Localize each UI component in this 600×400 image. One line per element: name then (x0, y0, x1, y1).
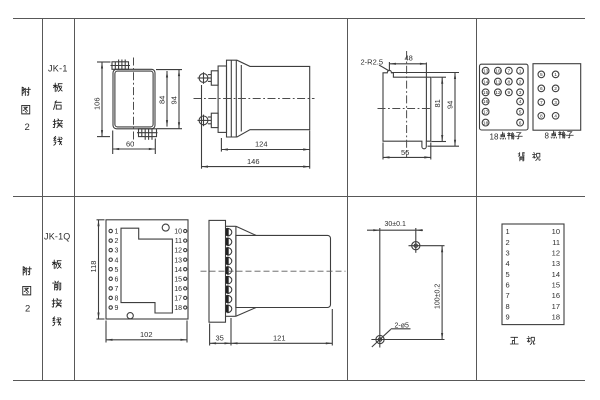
svg-text:2: 2 (25, 304, 30, 315)
svg-text:1: 1 (115, 229, 119, 236)
svg-text:3: 3 (115, 248, 119, 255)
svg-text:35: 35 (216, 334, 224, 343)
svg-text:15: 15 (174, 276, 182, 283)
svg-text:18: 18 (174, 305, 182, 312)
svg-text:2: 2 (519, 79, 522, 85)
svg-text:102: 102 (140, 330, 153, 339)
svg-text:4: 4 (554, 114, 557, 120)
svg-text:2: 2 (554, 86, 557, 92)
svg-text:1: 1 (554, 72, 557, 78)
svg-text:5: 5 (540, 72, 543, 78)
svg-text:11: 11 (175, 238, 182, 245)
svg-text:8: 8 (115, 296, 119, 303)
svg-text:9: 9 (115, 305, 119, 312)
svg-text:48: 48 (405, 54, 413, 63)
svg-text:146: 146 (247, 157, 260, 166)
svg-text:8: 8 (545, 132, 550, 141)
svg-text:12: 12 (174, 248, 182, 255)
svg-text:5: 5 (519, 109, 522, 115)
svg-text:118: 118 (89, 261, 98, 273)
svg-text:11: 11 (495, 79, 500, 85)
svg-text:10: 10 (495, 68, 501, 74)
svg-text:7: 7 (506, 291, 510, 300)
svg-text:17: 17 (174, 296, 182, 303)
svg-text:3: 3 (554, 100, 557, 106)
svg-text:8: 8 (506, 302, 510, 311)
svg-text:17: 17 (552, 302, 560, 311)
svg-text:10: 10 (552, 227, 560, 236)
svg-text:8: 8 (540, 114, 543, 120)
svg-text:2: 2 (506, 238, 510, 247)
svg-text:11: 11 (552, 238, 560, 247)
svg-text:6: 6 (540, 86, 543, 92)
svg-text:18: 18 (490, 133, 499, 142)
svg-text:30±0.1: 30±0.1 (385, 221, 406, 228)
svg-text:10: 10 (174, 229, 182, 236)
svg-text:7: 7 (115, 286, 119, 293)
svg-text:84: 84 (158, 96, 167, 104)
svg-text:3: 3 (519, 90, 522, 96)
svg-text:13: 13 (483, 68, 489, 74)
svg-text:121: 121 (273, 334, 286, 343)
svg-text:7: 7 (507, 68, 510, 74)
svg-text:16: 16 (552, 291, 560, 300)
svg-text:16: 16 (483, 99, 489, 105)
svg-text:14: 14 (174, 267, 182, 274)
svg-text:4: 4 (519, 99, 522, 105)
svg-text:2: 2 (115, 238, 119, 245)
svg-text:3: 3 (506, 249, 510, 258)
svg-text:13: 13 (174, 257, 182, 264)
svg-text:81: 81 (433, 99, 442, 107)
svg-text:18: 18 (483, 120, 489, 126)
svg-text:14: 14 (483, 79, 489, 85)
svg-text:2: 2 (25, 122, 30, 133)
svg-text:4: 4 (506, 259, 510, 268)
svg-text:1: 1 (506, 227, 510, 236)
svg-text:94: 94 (170, 96, 179, 104)
svg-text:6: 6 (115, 276, 119, 283)
svg-text:94: 94 (446, 101, 455, 109)
svg-text:13: 13 (552, 259, 560, 268)
svg-text:18: 18 (552, 313, 560, 322)
svg-text:7: 7 (540, 100, 543, 106)
svg-text:15: 15 (483, 90, 489, 96)
svg-text:12: 12 (552, 249, 560, 258)
svg-text:6: 6 (519, 120, 522, 126)
svg-text:100±0.2: 100±0.2 (435, 284, 442, 309)
svg-text:12: 12 (495, 90, 501, 96)
svg-text:60: 60 (126, 140, 134, 149)
svg-text:6: 6 (506, 281, 510, 290)
svg-text:15: 15 (552, 281, 560, 290)
svg-text:14: 14 (552, 270, 560, 279)
svg-text:124: 124 (255, 140, 268, 149)
svg-text:9: 9 (507, 90, 510, 96)
svg-text:106: 106 (93, 97, 102, 110)
svg-text:JK-1: JK-1 (48, 64, 68, 74)
svg-text:5: 5 (506, 270, 510, 279)
svg-text:1: 1 (519, 68, 522, 74)
svg-text:16: 16 (174, 286, 182, 293)
svg-text:JK-1Q: JK-1Q (44, 232, 71, 242)
svg-text:8: 8 (507, 79, 510, 85)
svg-text:17: 17 (483, 109, 489, 115)
svg-text:56: 56 (401, 148, 409, 157)
svg-text:9: 9 (506, 313, 510, 322)
svg-text:4: 4 (115, 257, 119, 264)
svg-text:5: 5 (115, 267, 119, 274)
